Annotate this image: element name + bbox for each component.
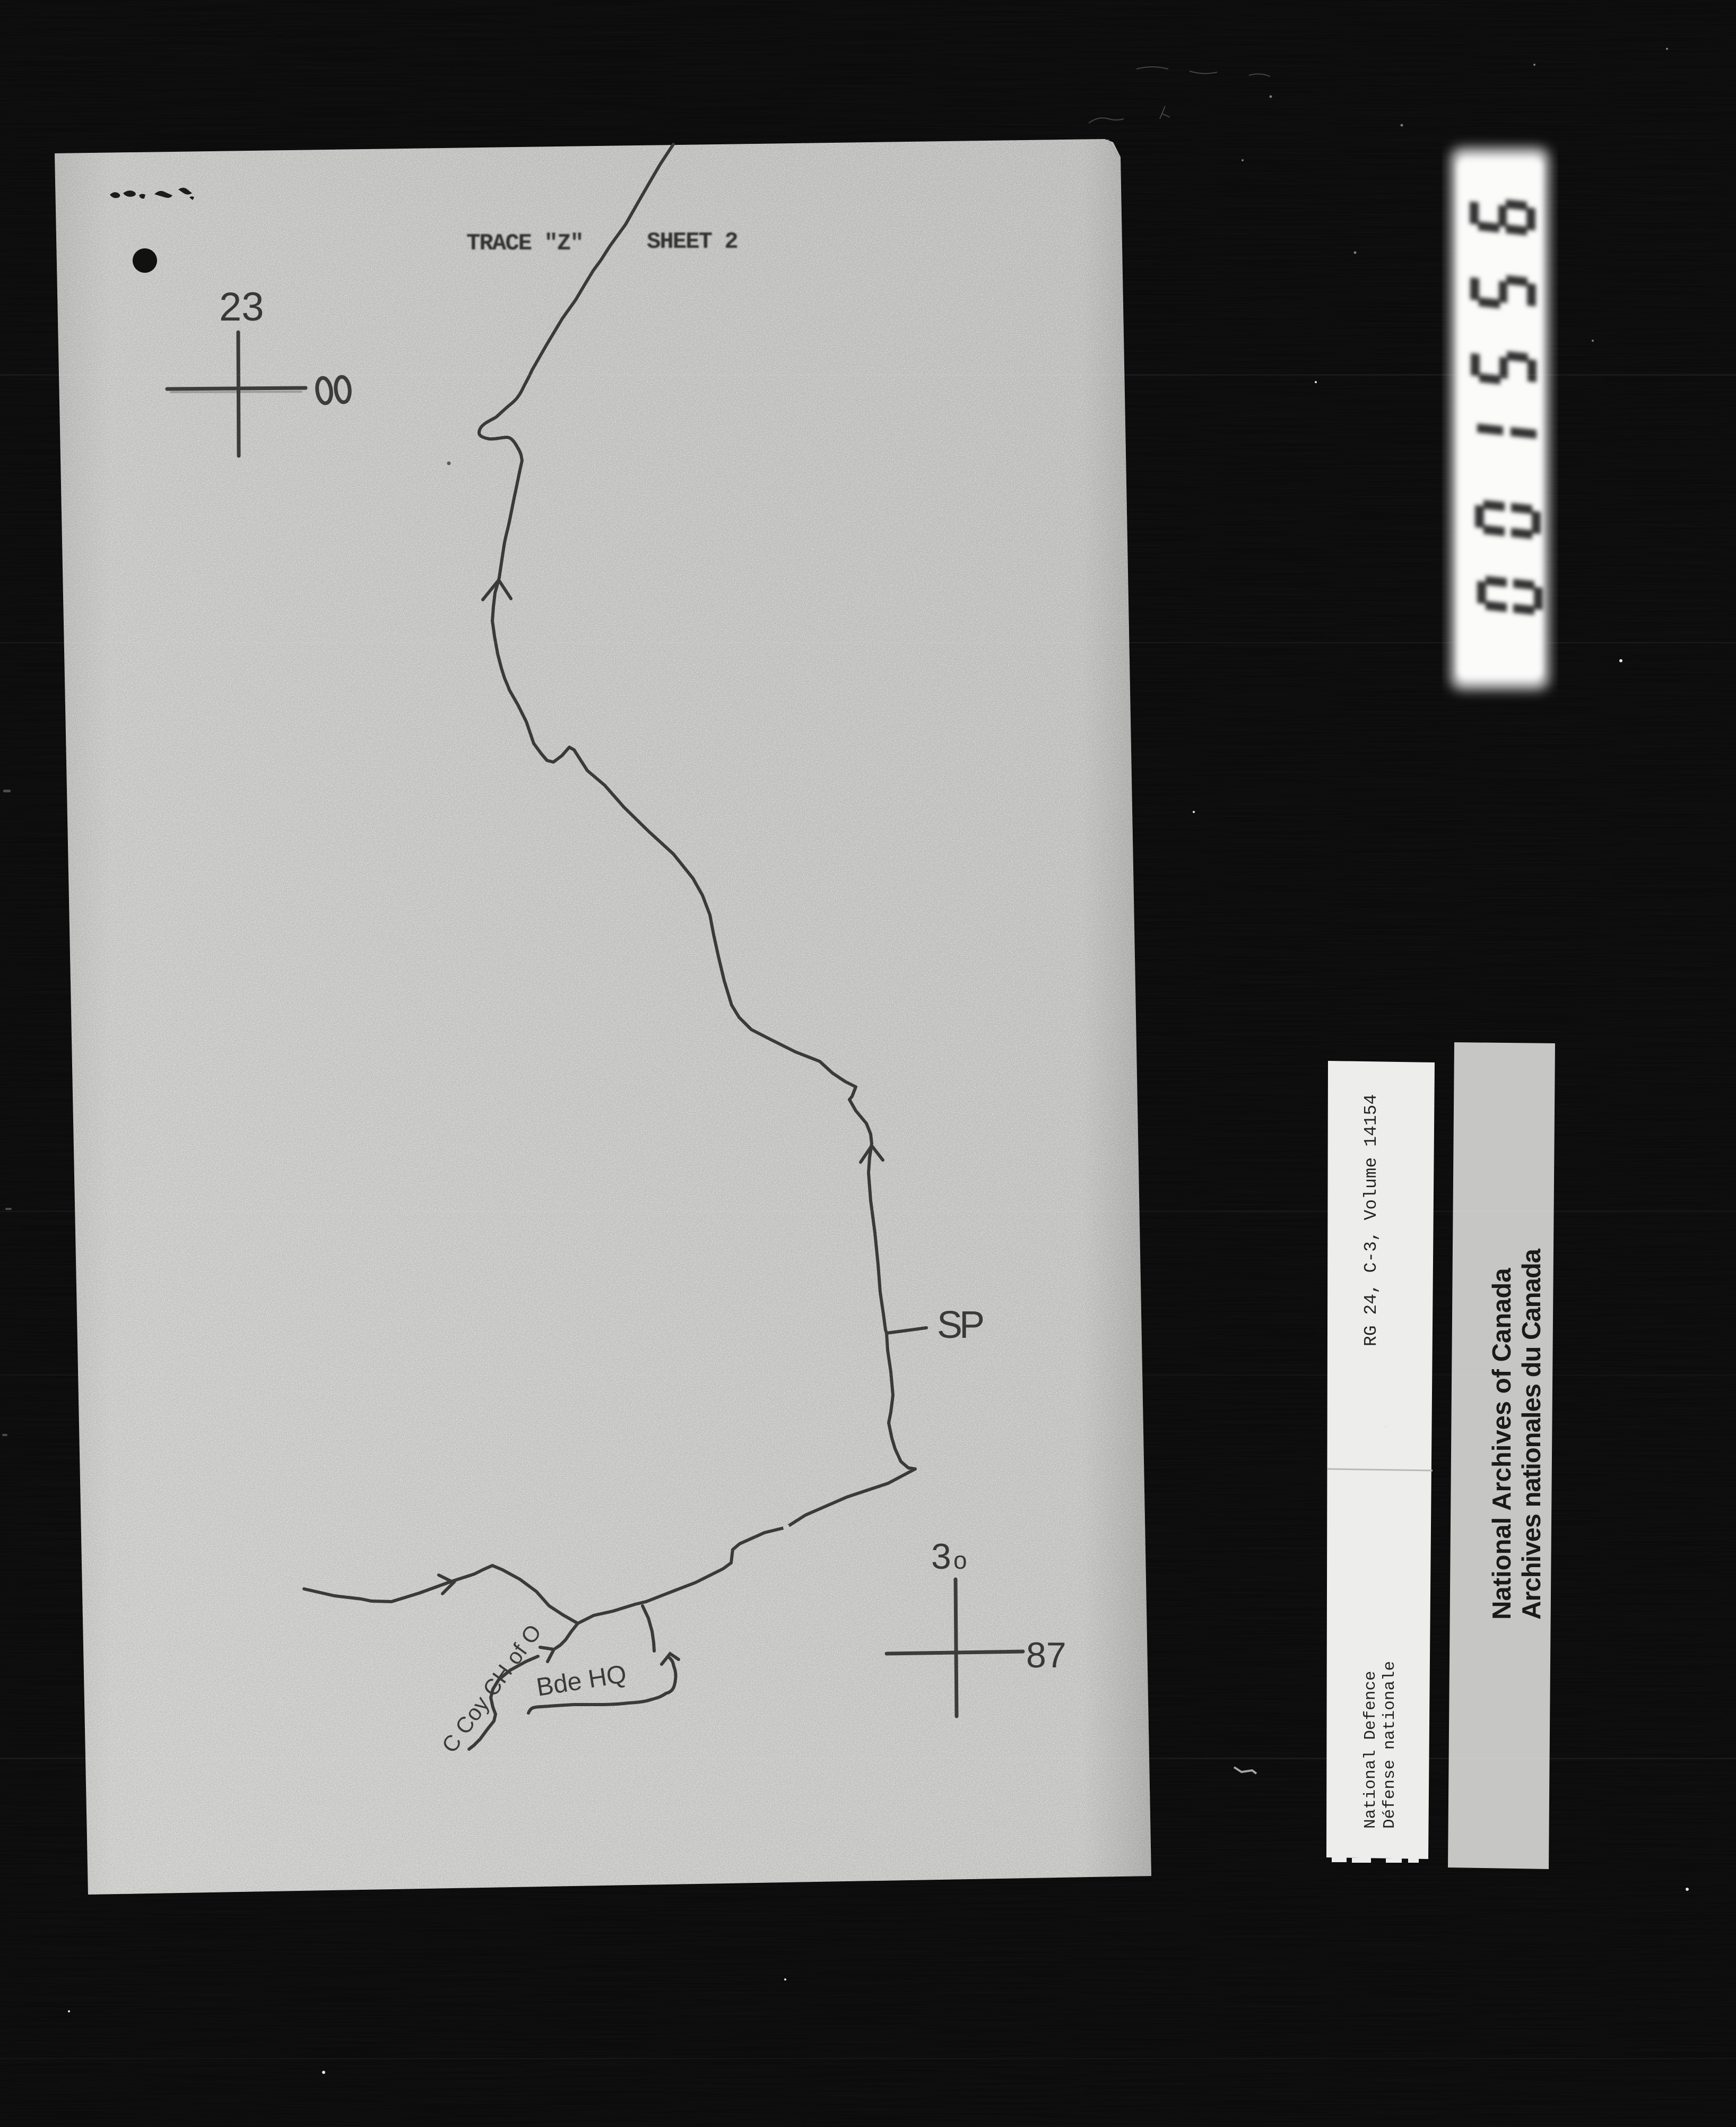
svg-text:o: o xyxy=(953,1546,967,1574)
svg-text:TRACE "Z": TRACE "Z" xyxy=(466,230,583,257)
svg-text:RG 24, C-3, Volume 14154: RG 24, C-3, Volume 14154 xyxy=(1361,1094,1381,1346)
svg-text:Défense nationale: Défense nationale xyxy=(1381,1661,1399,1829)
svg-text:National Defence: National Defence xyxy=(1361,1671,1380,1829)
svg-text:SHEET 2: SHEET 2 xyxy=(647,229,737,255)
svg-text:23: 23 xyxy=(219,284,264,330)
svg-text:Archives nationales du Canada: Archives nationales du Canada xyxy=(1517,1248,1546,1620)
svg-text:3: 3 xyxy=(931,1536,951,1577)
svg-text:National Archives of Canada: National Archives of Canada xyxy=(1488,1268,1516,1620)
svg-text:SP: SP xyxy=(937,1304,983,1346)
svg-text:87: 87 xyxy=(1026,1635,1066,1675)
